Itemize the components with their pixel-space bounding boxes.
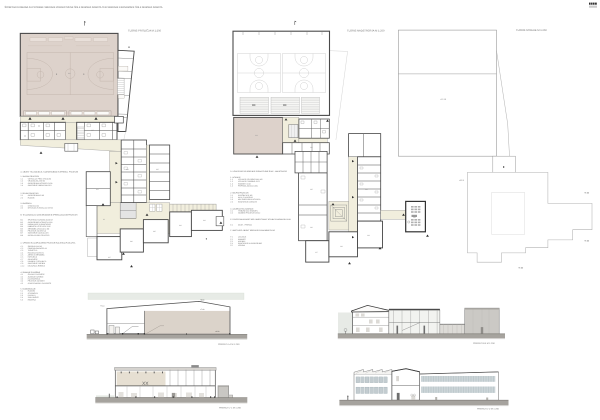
svg-text:3.2: 3.2 bbox=[21, 207, 23, 210]
svg-text:F. OBSTOJEČI OBJEKT SREDNJE EK: F. OBSTOJEČI OBJEKT SREDNJE EKONOMSKE ŠO… bbox=[230, 229, 275, 232]
svg-text:GOSPODARSKO DVORIŠČE: GOSPODARSKO DVORIŠČE bbox=[28, 282, 52, 285]
svg-text:IZPOSOJA IN KATALOGI 25 M2: IZPOSOJA IN KATALOGI 25 M2 bbox=[28, 207, 53, 210]
svg-text:E.1: E.1 bbox=[230, 223, 233, 226]
svg-text:B.8: B.8 bbox=[21, 234, 24, 237]
svg-text:1.4: 1.4 bbox=[21, 184, 23, 187]
svg-text:+12.1: +12.1 bbox=[459, 179, 465, 182]
svg-text:C.10: C.10 bbox=[21, 264, 25, 267]
svg-text:PREREZ C-C M 1:250: PREREZ C-C M 1:250 bbox=[219, 406, 242, 409]
svg-text:2.4: 2.4 bbox=[230, 200, 232, 203]
svg-text:A. OBJEKT TELOVADNICE Z GARDER: A. OBJEKT TELOVADNICE Z GARDEROBAMI IN S… bbox=[21, 170, 79, 173]
svg-text:E. POVEZOVALNI MOST MED OBJEKT: E. POVEZOVALNI MOST MED OBJEKTOMA Z UČIL… bbox=[230, 218, 291, 221]
svg-text:INSTALACIJSKI PROSTOR: INSTALACIJSKI PROSTOR bbox=[28, 234, 50, 237]
svg-text:SANITARIJE UČENCEV: SANITARIJE UČENCEV bbox=[238, 200, 258, 203]
svg-text:HODNIK: HODNIK bbox=[28, 196, 36, 199]
svg-text:3.2: 3.2 bbox=[230, 212, 232, 215]
svg-text:DELAVNICA HIŠNIKA: DELAVNICA HIŠNIKA bbox=[28, 264, 46, 267]
svg-text:PREREZ B-B M 1:250: PREREZ B-B M 1:250 bbox=[473, 342, 495, 345]
svg-text:+0.00: +0.00 bbox=[215, 330, 219, 333]
svg-text:MOST - PREHOD: MOST - PREHOD bbox=[238, 223, 253, 226]
svg-text:ŠPORTNA DVORANA ZA POTREBE SRE: ŠPORTNA DVORANA ZA POTREBE SREDNJE ZDRAV… bbox=[5, 5, 163, 9]
svg-text:TLORIS PRITLIČJA M 1:250: TLORIS PRITLIČJA M 1:250 bbox=[128, 29, 162, 33]
svg-text:VADBENI PROSTOR 15X12: VADBENI PROSTOR 15X12 bbox=[238, 212, 260, 215]
svg-text:4.5: 4.5 bbox=[21, 282, 23, 285]
svg-text:+12.10: +12.10 bbox=[440, 98, 447, 101]
svg-text:D. UČNI PROSTORI SREDNJE ZDRAV: D. UČNI PROSTORI SREDNJE ZDRAVSTVENE ŠOL… bbox=[230, 170, 287, 173]
svg-text:2.2: 2.2 bbox=[21, 196, 23, 199]
svg-text:+7.40: +7.40 bbox=[200, 308, 204, 311]
svg-text:+9.60: +9.60 bbox=[584, 192, 590, 195]
svg-text:1.4: 1.4 bbox=[230, 185, 232, 188]
svg-text:F.5: F.5 bbox=[230, 244, 232, 247]
svg-text:UPRAVA: UPRAVA bbox=[238, 244, 246, 247]
svg-text:REZERVA: REZERVA bbox=[28, 298, 37, 301]
svg-text:TLORIS STREHE M 1:250: TLORIS STREHE M 1:250 bbox=[516, 29, 547, 32]
svg-text:+9.60: +9.60 bbox=[518, 267, 524, 270]
svg-text:PREREZ A-A M 1:250: PREREZ A-A M 1:250 bbox=[218, 343, 240, 346]
svg-text:B. TELOVADNICA Z GARDEROBAMI I: B. TELOVADNICA Z GARDEROBAMI IN SPREMLJA… bbox=[21, 213, 78, 216]
svg-text:C. UPRAVNI IN GOSPODARSKI PROS: C. UPRAVNI IN GOSPODARSKI PROSTORI ŠOLSK… bbox=[21, 242, 77, 245]
svg-text:+8.80: +8.80 bbox=[200, 299, 204, 302]
svg-text:SANITARIJE OBISKOVALCEV: SANITARIJE OBISKOVALCEV bbox=[28, 184, 53, 187]
svg-text:+7.10: +7.10 bbox=[100, 305, 104, 308]
svg-text:+9.60: +9.60 bbox=[584, 240, 590, 243]
svg-text:5.5: 5.5 bbox=[21, 298, 23, 301]
svg-text:PRIPRAVLJALNICA UČIL: PRIPRAVLJALNICA UČIL bbox=[238, 185, 258, 188]
svg-text:PREREZ D-D M 1:250: PREREZ D-D M 1:250 bbox=[477, 408, 500, 411]
svg-text:TLORIS NADSTROPJA M 1:250: TLORIS NADSTROPJA M 1:250 bbox=[347, 30, 385, 33]
